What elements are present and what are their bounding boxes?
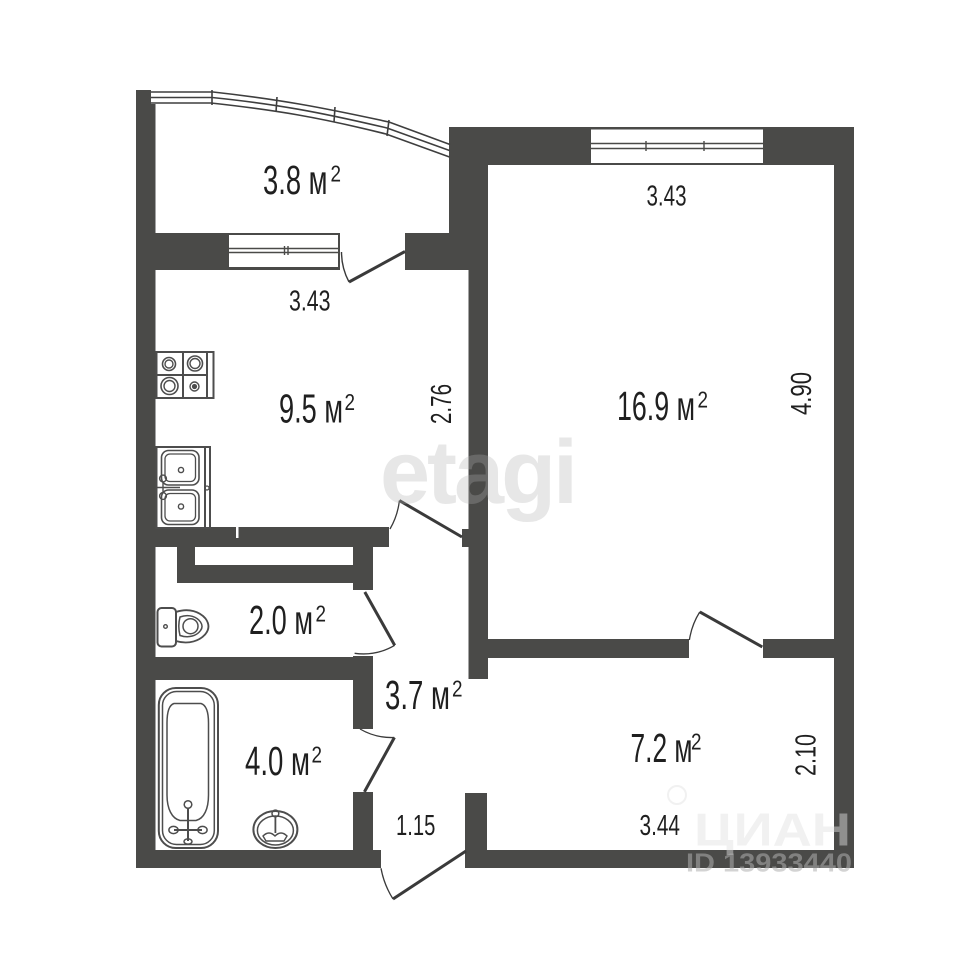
svg-text:4.90: 4.90 [786,372,818,415]
svg-text:2.10: 2.10 [791,734,823,776]
svg-text:2: 2 [316,601,327,627]
svg-text:2: 2 [691,729,702,755]
svg-text:2: 2 [345,389,356,415]
svg-text:4.0 м: 4.0 м [245,738,310,784]
svg-text:3.7 м: 3.7 м [385,672,450,718]
svg-text:1.15: 1.15 [396,810,435,842]
svg-text:3.43: 3.43 [289,285,331,317]
svg-text:etagi: etagi [380,423,575,523]
svg-text:3.8 м: 3.8 м [263,157,328,203]
svg-text:ID 13933440: ID 13933440 [686,848,852,878]
svg-text:2: 2 [331,161,342,187]
svg-text:7.2 м: 7.2 м [631,725,693,771]
svg-text:2: 2 [698,387,709,413]
svg-text:16.9 м: 16.9 м [617,383,695,429]
svg-text:9.5 м: 9.5 м [279,386,343,432]
svg-text:3.44: 3.44 [640,810,681,842]
svg-text:2.76: 2.76 [426,384,458,424]
svg-text:2: 2 [452,676,463,702]
svg-text:3.43: 3.43 [647,180,687,212]
svg-text:2.0 м: 2.0 м [249,597,313,643]
svg-text:2: 2 [312,742,323,768]
